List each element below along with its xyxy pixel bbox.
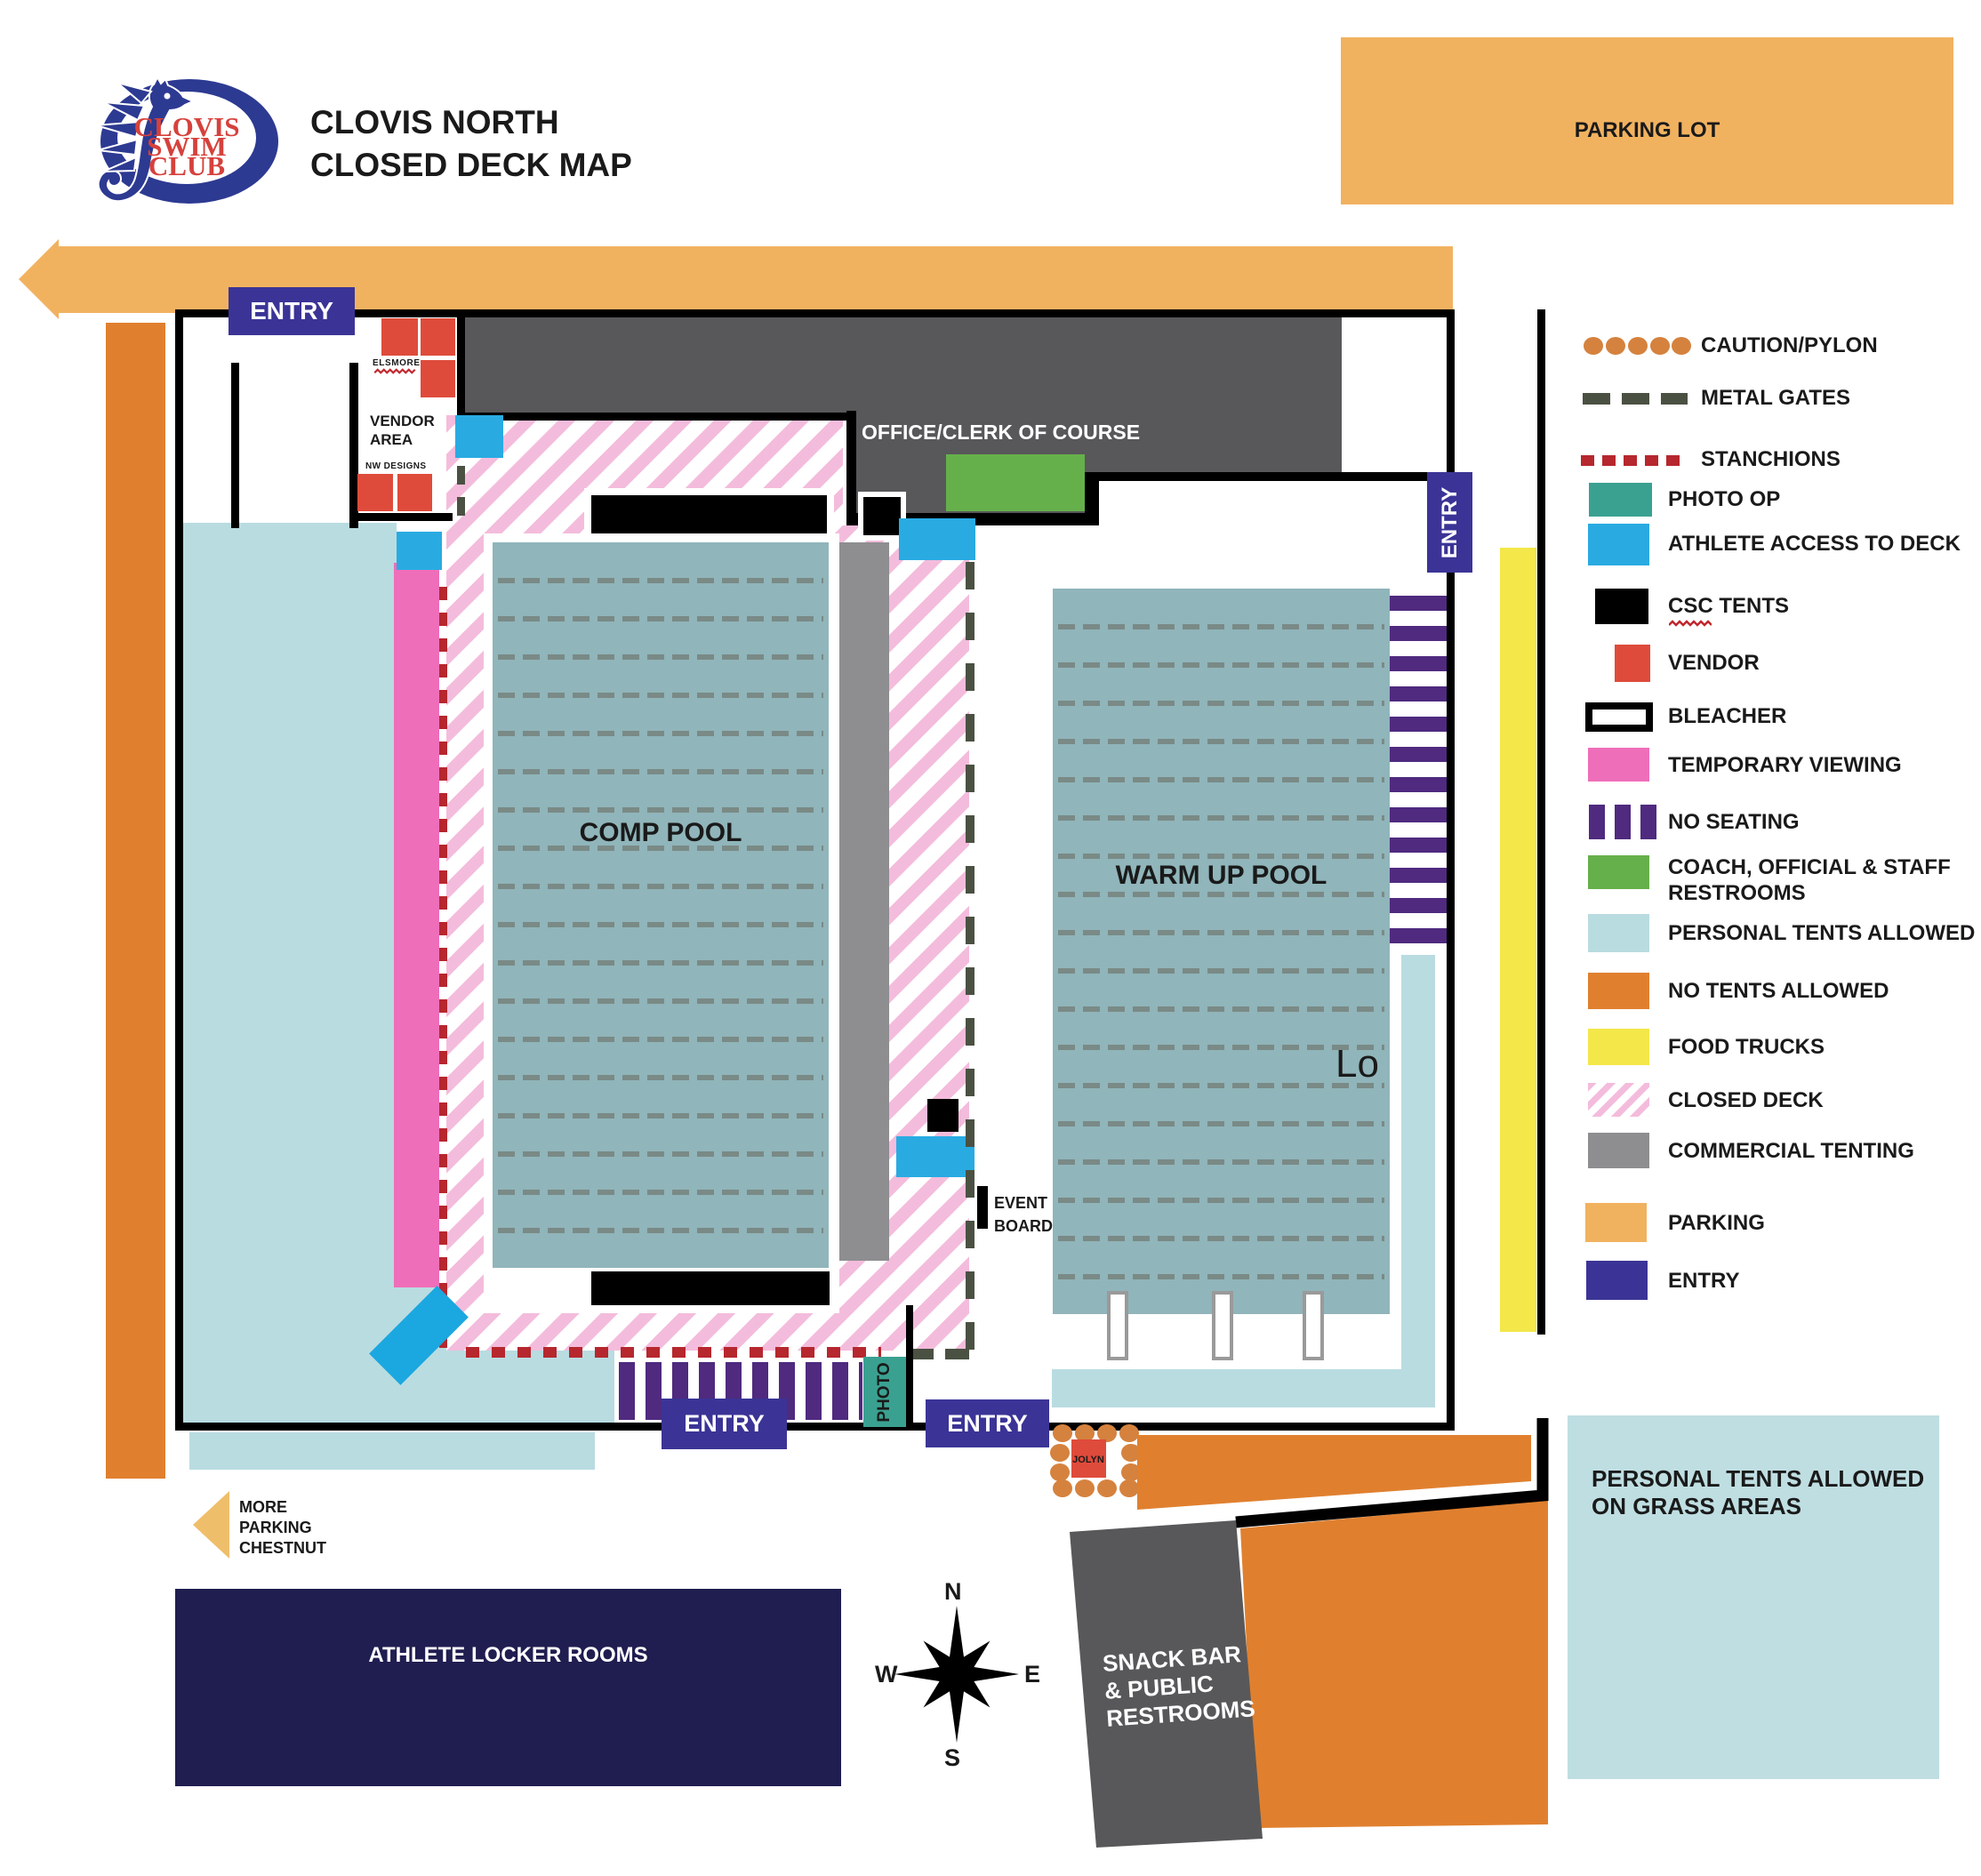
svg-text:CLUB: CLUB (148, 150, 225, 181)
